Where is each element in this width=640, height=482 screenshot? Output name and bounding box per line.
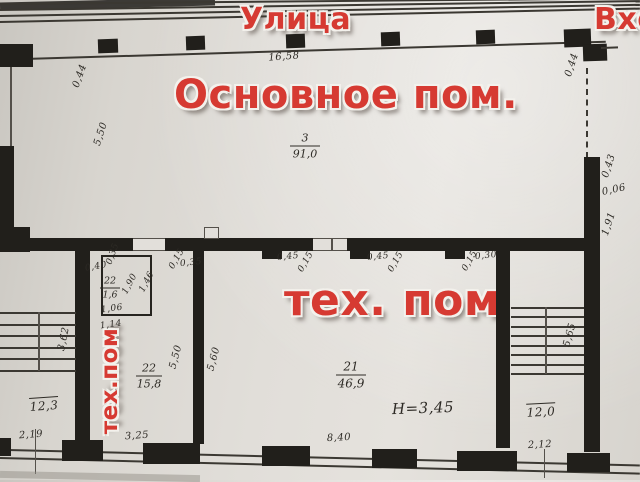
dim-top-width: 16,58 (268, 50, 300, 63)
dim-room21-width: 5,60 (206, 346, 223, 372)
dim-wall-g4b: 0,30 (475, 250, 498, 262)
wall-pier (567, 453, 610, 472)
dim-stair-left-bottom: 2,19 (19, 429, 44, 442)
dim-wall-g3b: 0,15 (386, 250, 406, 274)
room-area: 1,6 (102, 290, 117, 301)
dim-room22-bottom: 3,25 (125, 430, 150, 443)
wall-pier (262, 446, 310, 466)
floorplan-photo: { "labels": { "street": "Улица", "entran… (0, 0, 640, 480)
stair-tread (511, 373, 584, 375)
window-line-left (10, 67, 12, 147)
column-marker (186, 36, 205, 51)
area-label-stair-left: 12,3 (29, 398, 59, 414)
dim-right-1: 0,43 (600, 153, 618, 179)
dim-right-corner: 0,44 (563, 52, 581, 78)
dim-room21-bottom: 8,40 (327, 432, 352, 444)
stair-divider (38, 312, 40, 371)
room-area: 91,0 (293, 148, 318, 161)
room-number: 22 (104, 276, 116, 287)
door-leaf-line (331, 238, 333, 250)
stair-tread (511, 307, 584, 309)
column-marker (98, 39, 118, 54)
dim-wall-g3a: 0,45 (367, 251, 390, 263)
column-marker (476, 30, 495, 45)
wall-pier (143, 443, 200, 464)
column-marker (286, 34, 305, 49)
right-wall (584, 157, 600, 452)
middle-wall (165, 238, 313, 251)
pilaster (445, 251, 465, 259)
dim-stair-right-bottom: 2,12 (528, 439, 553, 451)
stair-divider (545, 307, 547, 374)
stair-tread (511, 364, 584, 366)
wall-pier (457, 451, 517, 471)
dim-left-corner: 0,44 (71, 63, 90, 90)
dim-room22-width: 5,50 (168, 344, 185, 370)
stair-tread (511, 354, 584, 356)
room-area: 15,8 (137, 378, 162, 391)
main-room-title: Основное пом. (174, 72, 518, 118)
entrance-label: Вход (594, 2, 640, 37)
room-divider-wall (496, 251, 510, 448)
stair-tread (511, 316, 584, 318)
room-label-closet: 22 1,6 (100, 276, 120, 301)
corner-block-left (0, 44, 33, 67)
area-label-stair-right: 12,0 (526, 404, 555, 419)
street-label: Улица (240, 2, 351, 37)
wall-pier (372, 449, 417, 468)
door-opening (133, 238, 165, 251)
stair-tread (511, 345, 584, 347)
dim-right-3: 1,91 (600, 211, 618, 237)
tech-room-title: тех. пом (284, 275, 500, 326)
wall-pier (0, 438, 11, 456)
room-label-tech-big: 21 46,9 (336, 360, 366, 391)
middle-wall (347, 238, 585, 251)
room-label-main: 3 91,0 (290, 132, 320, 161)
dim-tick (601, 46, 618, 49)
dim-extension-line (544, 449, 545, 478)
dashed-boundary (586, 68, 588, 158)
room-number: 3 (302, 132, 309, 145)
pilaster (204, 227, 219, 239)
wall-pier (62, 440, 103, 461)
room-number: 22 (142, 362, 156, 375)
dim-right-2: 0,06 (601, 182, 627, 198)
room-number: 21 (343, 360, 358, 374)
dim-left-height: 5,50 (92, 121, 110, 147)
door-opening (313, 238, 347, 251)
column-marker (381, 32, 400, 47)
room-divider-wall (193, 251, 204, 444)
room-area: 46,9 (338, 377, 365, 391)
ceiling-height-label: H=3,45 (392, 398, 455, 418)
tech-room-vertical-label: тех.пом (97, 328, 123, 435)
dim-wall-g2a: 0,45 (277, 251, 300, 263)
photo-edge-shadow (0, 471, 200, 482)
room-label-tech-small: 22 15,8 (136, 362, 162, 391)
dim-wall-g2b: 0,15 (296, 250, 316, 274)
stair-left-wall (75, 251, 90, 441)
